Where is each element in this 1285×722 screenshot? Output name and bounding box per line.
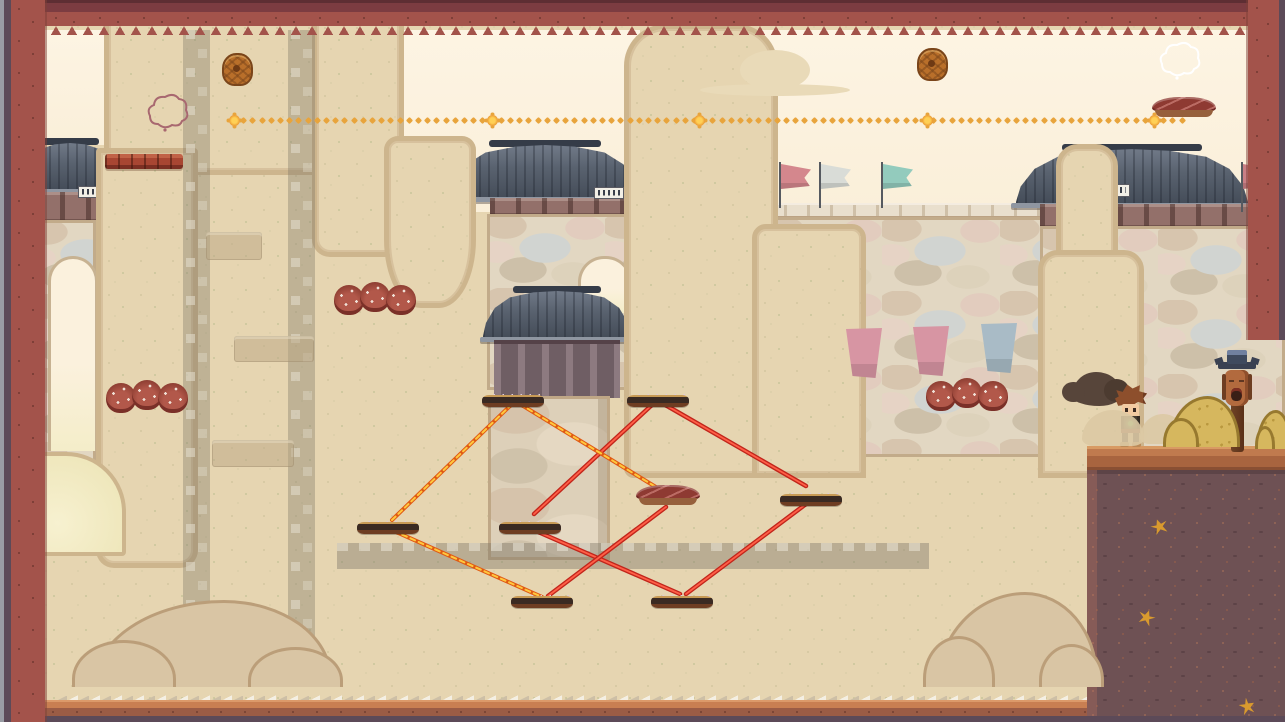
coin-trail-star — [1068, 117, 1075, 124]
coin-trail-star — [1041, 117, 1048, 124]
coin-trail-star — [581, 117, 588, 124]
coin-trail-star — [673, 117, 680, 124]
banner-pole — [0, 0, 2, 78]
meat-rim — [639, 498, 697, 505]
trap-base — [780, 494, 842, 506]
ladder-shelf — [212, 440, 294, 467]
coin-trail-star — [498, 117, 505, 124]
trap-base — [511, 596, 573, 608]
coin-trail-star — [875, 117, 882, 124]
coin-trail-star — [240, 117, 247, 124]
cloud-outline-path — [149, 95, 188, 127]
coin-trail-star — [967, 117, 974, 124]
trap-base — [499, 522, 561, 534]
cloud-outline-icon — [1158, 40, 1204, 82]
coin-trail-flower — [487, 115, 498, 126]
coin-trail-star — [553, 117, 560, 124]
laser-beam — [662, 403, 806, 486]
coin-trail-star — [1050, 117, 1057, 124]
coin-trail-star — [341, 117, 348, 124]
coin-trail-star — [323, 117, 330, 124]
coin-trail-star — [617, 117, 624, 124]
coin-trail-star — [590, 117, 597, 124]
coin-trail-star — [719, 117, 726, 124]
coin-trail-star — [1077, 117, 1084, 124]
coin-trail-star — [958, 117, 965, 124]
coin-trail-star — [774, 117, 781, 124]
laser-beam — [392, 404, 512, 520]
coin-trail-star — [682, 117, 689, 124]
cloud-outline-icon — [146, 92, 192, 134]
hanging-banner — [913, 326, 949, 376]
coin-trail-star — [838, 117, 845, 124]
yellow-bush — [1168, 396, 1240, 447]
red-bush — [386, 285, 416, 315]
coin-trail-star — [544, 117, 551, 124]
coin-trail-star — [562, 117, 569, 124]
banner-pole — [0, 156, 2, 234]
coin-trail-star — [516, 117, 523, 124]
coin-trail-star — [1114, 117, 1121, 124]
coin-trail-star — [912, 117, 919, 124]
coin-trail-star — [663, 117, 670, 124]
cloud-outline-path — [1161, 43, 1200, 75]
laser-beam — [520, 404, 664, 492]
acorn-pickup — [222, 53, 253, 86]
red-bush — [978, 381, 1008, 411]
coin-trail-star — [857, 117, 864, 124]
coin-trail-star — [249, 117, 256, 124]
coin-trail-star — [599, 117, 606, 124]
wall-flag — [781, 164, 811, 189]
coin-trail-star — [1105, 117, 1112, 124]
flag-pole — [881, 162, 883, 208]
meat-platform — [1152, 97, 1216, 119]
ladder-shelf — [234, 336, 314, 362]
wall-flag — [1243, 164, 1273, 189]
coin-trail-star — [783, 117, 790, 124]
hanging-banner — [846, 328, 882, 378]
coin-trail-star — [507, 117, 514, 124]
coin-trail-star — [903, 117, 910, 124]
spike-trap-platform — [482, 386, 544, 407]
coin-trail-star — [765, 117, 772, 124]
trap-base — [651, 596, 713, 608]
coin-trail-star — [1142, 117, 1149, 124]
coin-trail-star — [801, 117, 808, 124]
coin-trail-star — [1059, 117, 1066, 124]
meat-platform — [636, 485, 700, 507]
coin-trail-star — [995, 117, 1002, 124]
cloud-tail-dot — [163, 128, 166, 131]
coin-trail-star — [461, 117, 468, 124]
coin-trail-star — [268, 117, 275, 124]
spike-trap-platform — [357, 513, 419, 534]
coin-trail-star — [654, 117, 661, 124]
spike-trap-platform — [499, 513, 561, 534]
flag-pole — [1241, 162, 1243, 212]
glass-beam — [337, 543, 929, 569]
meat-rim — [1155, 110, 1213, 117]
coin-trail-star — [755, 117, 762, 124]
trap-base — [482, 395, 544, 407]
cloud-tan — [700, 84, 850, 96]
hanging-banner — [981, 323, 1017, 373]
entity-layer — [0, 0, 1285, 722]
coin-trail-star — [847, 117, 854, 124]
coin-trail-star — [1133, 117, 1140, 124]
coin-trail-star — [608, 117, 615, 124]
ladder-shelf — [206, 232, 262, 260]
coin-trail-flower — [1149, 115, 1160, 126]
coin-trail-star — [976, 117, 983, 124]
coin-trail-star — [314, 117, 321, 124]
coin-trail-star — [443, 117, 450, 124]
coin-trail-star — [525, 117, 532, 124]
coin-trail-star — [360, 117, 367, 124]
coin-trail-star — [1096, 117, 1103, 124]
coin-trail-star — [829, 117, 836, 124]
coin-trail-star — [949, 117, 956, 124]
coin-trail-star — [1022, 117, 1029, 124]
game-viewport[interactable] — [0, 0, 1285, 722]
banner-pole — [0, 78, 2, 156]
coin-trail-star — [378, 117, 385, 124]
coin-trail-star — [645, 117, 652, 124]
coin-trail-star — [820, 117, 827, 124]
coin-trail-star — [627, 117, 634, 124]
coin-trail-star — [470, 117, 477, 124]
coin-trail-star — [746, 117, 753, 124]
coin-trail-star — [479, 117, 486, 124]
coin-trail-star — [737, 117, 744, 124]
gold-leaf — [1136, 608, 1157, 628]
acorn-pickup — [917, 48, 948, 81]
coin-trail-star — [452, 117, 459, 124]
laser-beam — [520, 404, 664, 492]
coin-trail-star — [571, 117, 578, 124]
coin-trail-star — [351, 117, 358, 124]
coin-trail-star — [397, 117, 404, 124]
coin-trail-flower — [694, 115, 705, 126]
coin-trail-star — [884, 117, 891, 124]
acorn-core — [233, 65, 240, 72]
trap-base — [627, 395, 689, 407]
coin-trail-star — [939, 117, 946, 124]
wall-flag — [883, 164, 913, 189]
coin-trail-star — [985, 117, 992, 124]
coin-trail-star — [1013, 117, 1020, 124]
coin-trail-star — [406, 117, 413, 124]
coin-trail-star — [433, 117, 440, 124]
coin-trail-star — [535, 117, 542, 124]
coin-trail-star — [415, 117, 422, 124]
coin-trail-star — [424, 117, 431, 124]
coin-trail-star — [1031, 117, 1038, 124]
gold-leaf — [1149, 517, 1170, 537]
coin-trail-star — [259, 117, 266, 124]
spike-trap-platform — [780, 485, 842, 506]
spike-trap-platform — [627, 386, 689, 407]
coin-trail-star — [893, 117, 900, 124]
coin-trail-star — [728, 117, 735, 124]
coin-trail-star — [369, 117, 376, 124]
coin-trail-star — [792, 117, 799, 124]
spike-trap-platform — [651, 587, 713, 608]
coin-trail-flower — [922, 115, 933, 126]
laser-beam — [662, 403, 806, 486]
wall-flag — [821, 164, 851, 189]
sand-mound — [936, 592, 1098, 687]
cloud-tail-dot — [1175, 76, 1178, 79]
flag-pole — [779, 162, 781, 208]
coin-trail-flower — [229, 115, 240, 126]
coin-trail-star — [1087, 117, 1094, 124]
coin-trail-star — [709, 117, 716, 124]
red-bush — [158, 383, 188, 413]
acorn-core — [928, 60, 935, 67]
dust-puff — [1082, 410, 1144, 446]
spike-trap-platform — [511, 587, 573, 608]
flag-pole — [819, 162, 821, 208]
coin-trail-star — [332, 117, 339, 124]
coin-trail-star — [277, 117, 284, 124]
coin-trail-star — [636, 117, 643, 124]
coin-trail-star — [387, 117, 394, 124]
gold-leaf — [1237, 695, 1258, 717]
yellow-bush — [1256, 410, 1285, 449]
coin-trail-star — [1123, 117, 1130, 124]
coin-trail-star — [866, 117, 873, 124]
coin-trail-star — [1004, 117, 1011, 124]
laser-beam — [392, 404, 512, 520]
trap-base — [357, 522, 419, 534]
coin-trail-star — [811, 117, 818, 124]
